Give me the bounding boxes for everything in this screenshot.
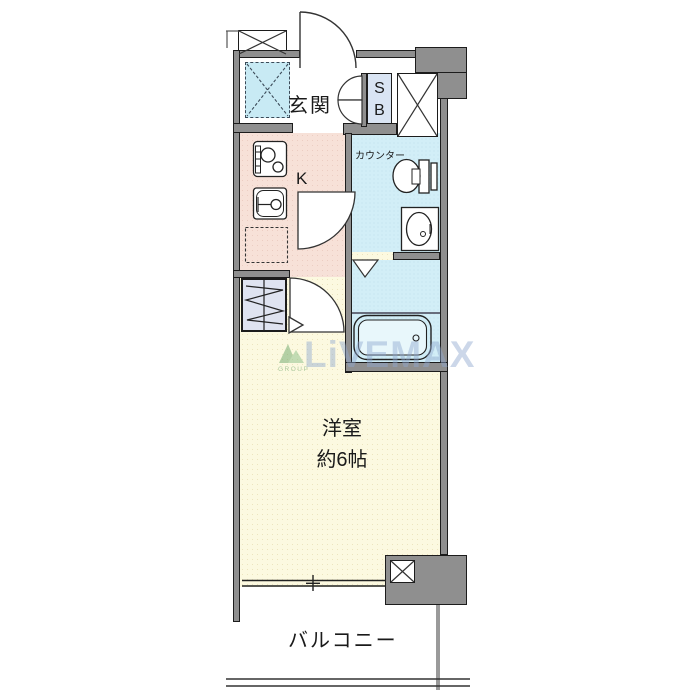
- kitchen-label: K: [296, 169, 307, 189]
- bathroom-floor: [352, 260, 440, 362]
- pillar-top-right-upper: [415, 47, 467, 73]
- wall-washroom-bath: [393, 252, 440, 260]
- balcony-railing: [226, 679, 470, 686]
- entrance-tile: [245, 62, 290, 118]
- room-size-label: 約6帖: [292, 443, 392, 472]
- shaft-xbox-right: [397, 73, 438, 137]
- wall-bath-bottom: [345, 362, 448, 372]
- shoe-box: S B: [367, 73, 392, 127]
- floor-plan-canvas: S B: [0, 0, 700, 700]
- wall-shoebox-left: [361, 73, 367, 127]
- balcony-side-divider: [436, 605, 440, 690]
- entrance-label: 玄関: [288, 89, 332, 118]
- wall-closet-top: [233, 270, 290, 278]
- shoe-box-label-line1: S: [374, 78, 385, 100]
- wall-top-right: [356, 50, 420, 58]
- counter-label: カウンター: [355, 147, 405, 162]
- closet-box: [241, 278, 287, 332]
- wall-top-left: [233, 50, 300, 58]
- room-name-label: 洋室: [292, 412, 392, 441]
- wall-left: [233, 50, 240, 622]
- wall-right: [440, 98, 448, 555]
- shoe-box-label-line2: B: [374, 100, 385, 122]
- shaft-xbox-bottom: [390, 560, 415, 583]
- kitchen-floor: [240, 133, 347, 277]
- pillar-top-right-lower: [437, 72, 467, 99]
- wall-entrance-kitchen: [233, 123, 293, 133]
- balcony-label: バルコニー: [288, 624, 398, 653]
- wall-kitchen-washroom: [345, 133, 352, 373]
